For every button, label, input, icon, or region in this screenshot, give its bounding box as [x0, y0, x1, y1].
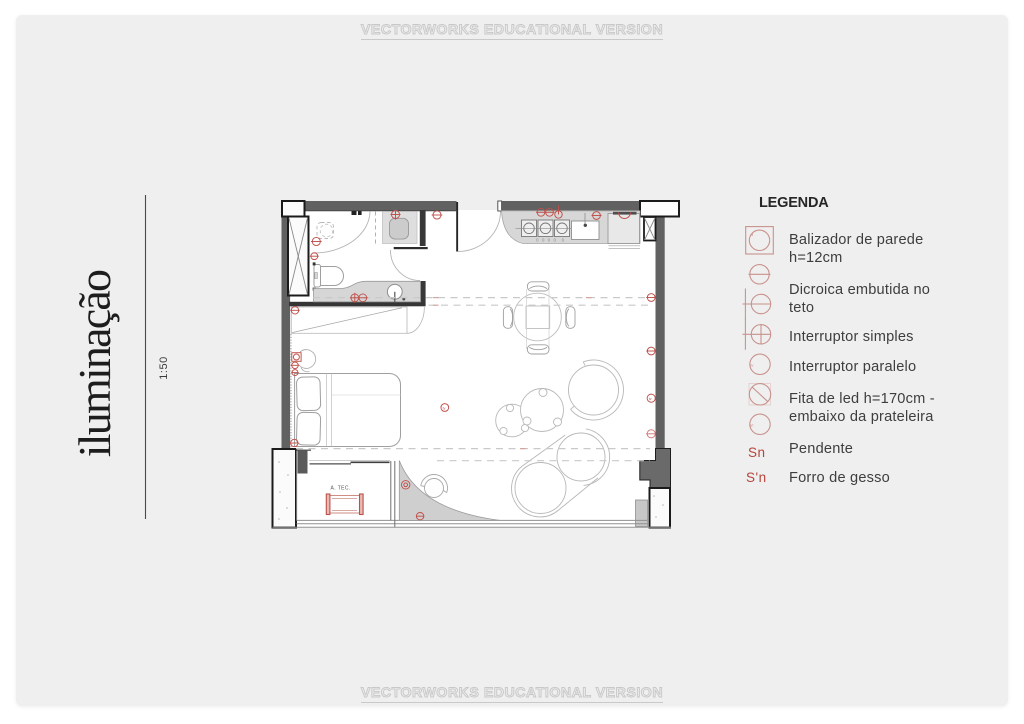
- svg-text:A. TEC.: A. TEC.: [331, 486, 351, 492]
- svg-text:tv: tv: [443, 406, 446, 410]
- svg-text:tv: tv: [751, 363, 754, 367]
- svg-text:0 0 0 0 0: 0 0 0 0 0: [536, 238, 565, 243]
- svg-text:tv: tv: [649, 397, 652, 401]
- svg-text:art: art: [750, 424, 754, 428]
